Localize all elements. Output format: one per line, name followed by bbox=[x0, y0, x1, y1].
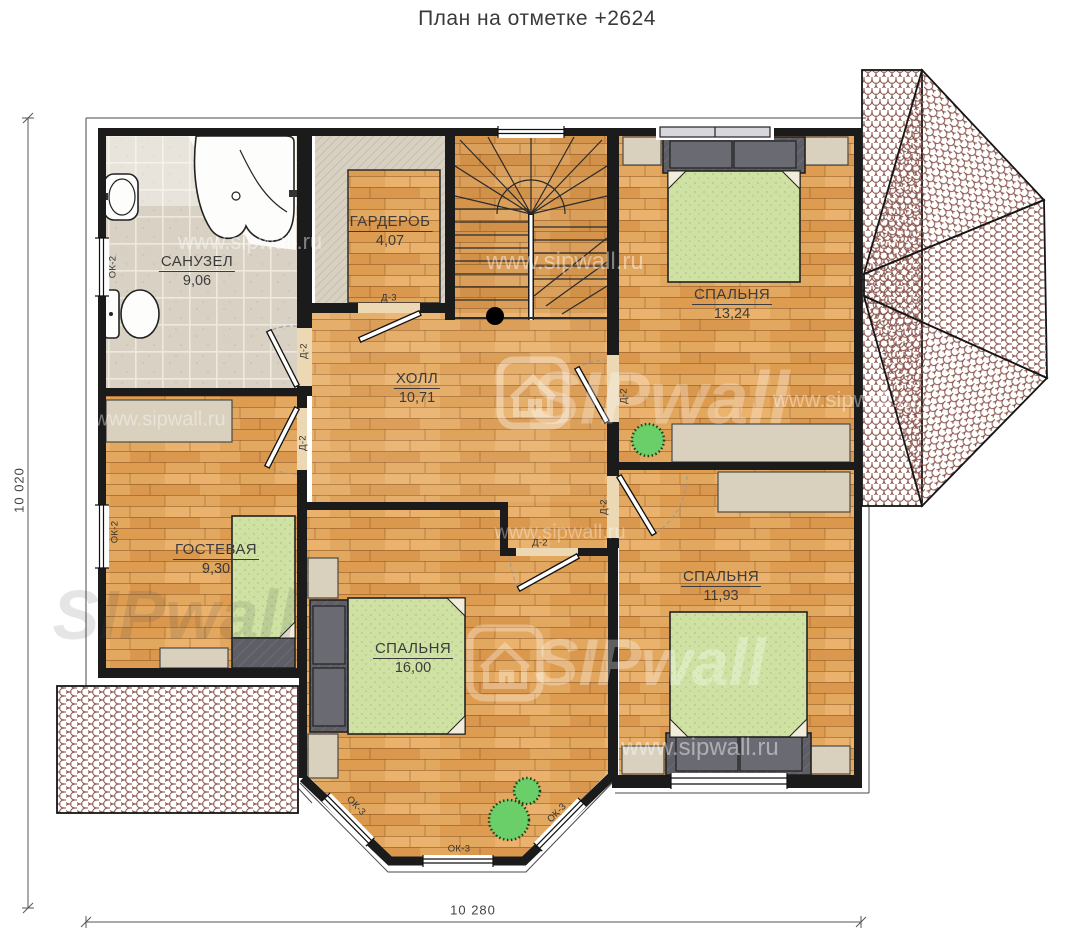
plant-corridor bbox=[632, 424, 664, 456]
bedroom-top-dresser bbox=[672, 424, 850, 462]
toilet bbox=[104, 290, 159, 338]
window-label-ok2: ОК-2 bbox=[110, 521, 121, 544]
guest-dresser bbox=[106, 400, 232, 442]
door-label-d2: Д-2 bbox=[532, 538, 548, 549]
room-name: ХОЛЛ bbox=[394, 370, 440, 389]
room-label-bedroom-center: СПАЛЬНЯ 16,00 bbox=[373, 640, 453, 676]
room-label-bedroom-right: СПАЛЬНЯ 11,93 bbox=[681, 568, 761, 604]
window-bedroom-right-bottom bbox=[671, 773, 787, 789]
dimension-vertical: 10 020 bbox=[12, 467, 27, 513]
room-area: 16,00 bbox=[373, 660, 453, 676]
room-name: САНУЗЕЛ bbox=[159, 253, 235, 272]
door-label-d2: Д-2 bbox=[599, 499, 610, 515]
room-area: 11,93 bbox=[681, 588, 761, 604]
stair-newel-post bbox=[486, 307, 504, 325]
plant-bay-small bbox=[514, 778, 540, 804]
window-bay-bottom bbox=[423, 855, 493, 867]
room-name: СПАЛЬНЯ bbox=[681, 568, 761, 587]
window-label-ok2: ОК-2 bbox=[108, 256, 119, 279]
room-area: 13,24 bbox=[692, 306, 772, 322]
door-label-d2: Д-2 bbox=[619, 388, 630, 404]
door-label-d3: Д-3 bbox=[381, 293, 397, 304]
roof-bottom-left bbox=[57, 686, 298, 813]
window-top-bedroom bbox=[656, 124, 774, 140]
room-label-guest: ГОСТЕВАЯ 9,30 bbox=[173, 541, 259, 577]
room-label-bathroom: САНУЗЕЛ 9,06 bbox=[159, 253, 235, 289]
window-label-ok3: ОК-3 bbox=[448, 844, 471, 855]
page-title: План на отметке +2624 bbox=[418, 7, 656, 31]
window-guest-left bbox=[95, 505, 109, 568]
room-name: ГОСТЕВАЯ bbox=[173, 541, 259, 560]
room-name: СПАЛЬНЯ bbox=[692, 286, 772, 305]
roof-top-right bbox=[862, 70, 1047, 506]
room-area: 9,06 bbox=[159, 273, 235, 289]
room-area: 9,30 bbox=[173, 561, 259, 577]
door-label-d2: Д-2 bbox=[298, 435, 309, 451]
room-label-wardrobe: ГАРДЕРОБ 4,07 bbox=[348, 213, 433, 249]
floor-plan-drawing bbox=[0, 0, 1067, 948]
plant-bay-large bbox=[489, 800, 529, 840]
room-label-bedroom-top: СПАЛЬНЯ 13,24 bbox=[692, 286, 772, 322]
room-label-hall: ХОЛЛ 10,71 bbox=[394, 370, 440, 406]
room-area: 4,07 bbox=[348, 233, 433, 249]
window-top-stairs bbox=[498, 126, 564, 138]
room-name: СПАЛЬНЯ bbox=[373, 640, 453, 659]
dimension-horizontal: 10 280 bbox=[450, 903, 496, 918]
room-area: 10,71 bbox=[394, 390, 440, 406]
bedroom-right-dresser bbox=[718, 472, 850, 512]
door-label-d2: Д-2 bbox=[299, 343, 310, 359]
floor-plan-page: План на отметке +2624 www.sipwall.ru www… bbox=[0, 0, 1067, 948]
room-name: ГАРДЕРОБ bbox=[348, 213, 433, 232]
guest-bed bbox=[232, 516, 295, 668]
guest-bench bbox=[160, 648, 228, 668]
